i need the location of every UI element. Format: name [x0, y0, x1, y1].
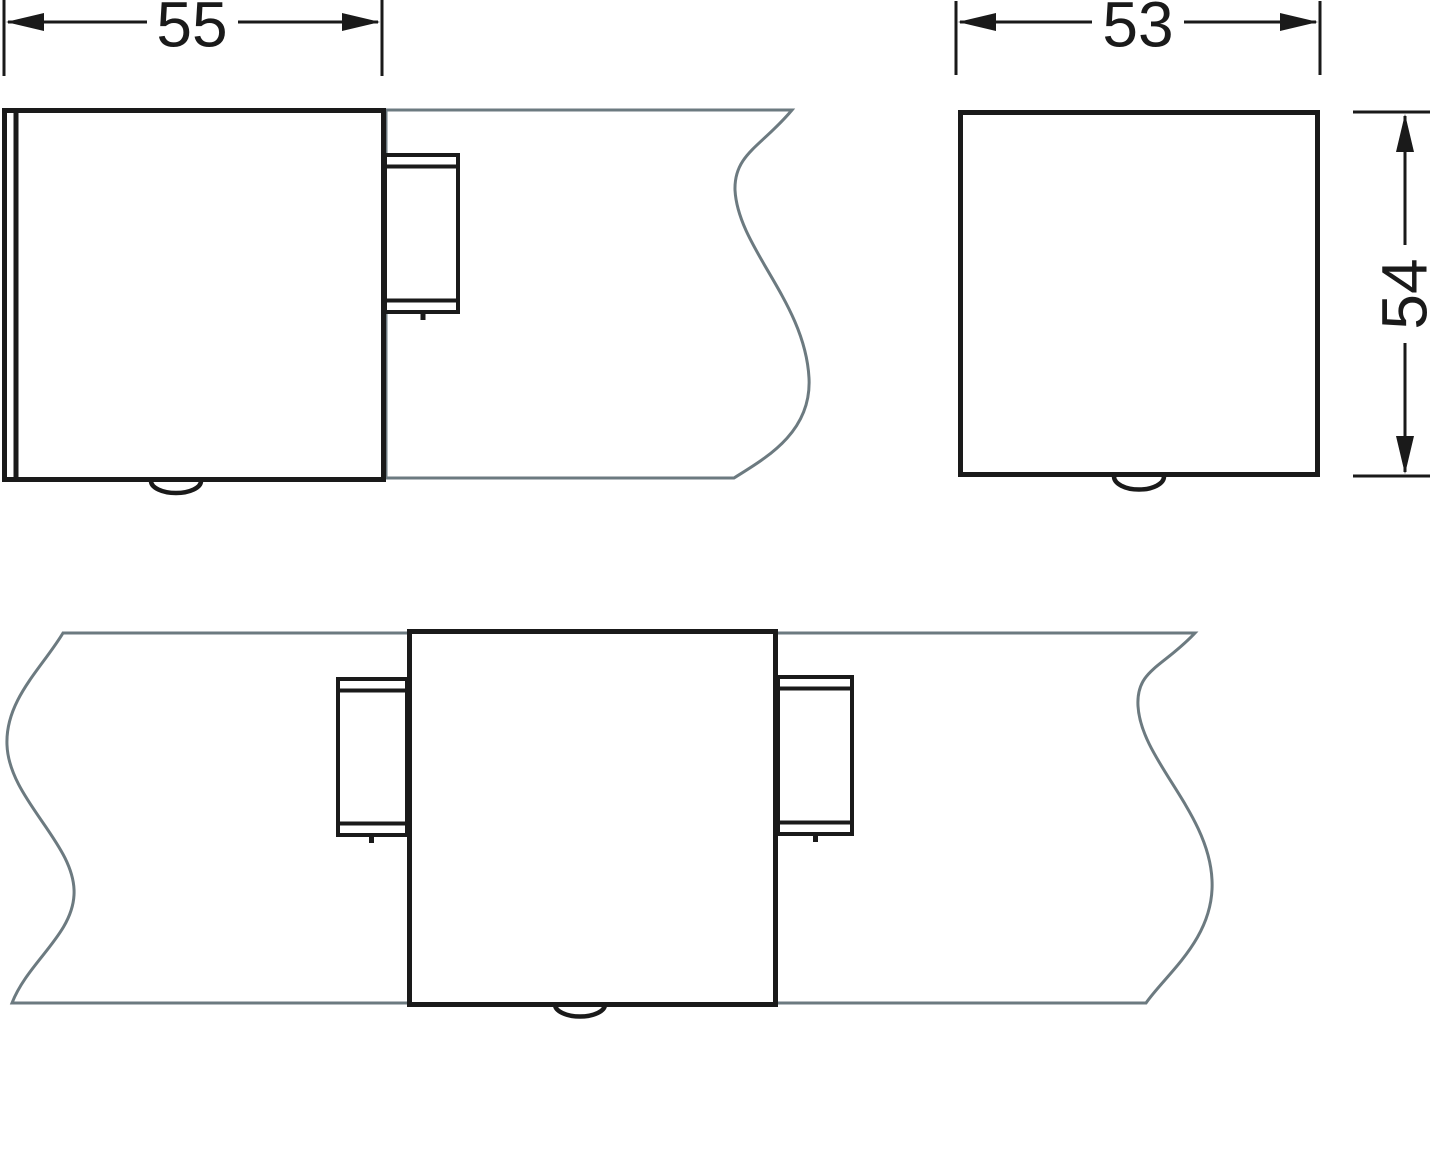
dim-55-arrow-left [6, 13, 44, 31]
plan-view-cap-body [410, 632, 776, 1005]
plan-view-right-clip-center-tick [813, 836, 818, 842]
plan-view-right-clip [778, 677, 852, 842]
plan-view-left-clip-outline [338, 679, 407, 835]
end-view-bottom-notch [1114, 477, 1164, 490]
side-view-clip-center-tick [421, 314, 426, 320]
dim-55-arrow-right [342, 13, 380, 31]
dim-53-arrow-left [958, 13, 996, 31]
plan-view-left-clip [338, 679, 409, 843]
side-view-clip-outline [385, 155, 458, 312]
dim-55-label: 55 [156, 0, 227, 60]
plan-view [7, 632, 1212, 1017]
plan-view-right-clip-outline [778, 677, 852, 834]
dim-53: 53 [956, 0, 1320, 75]
side-view-clip [383, 155, 458, 320]
dim-53-label: 53 [1102, 0, 1173, 60]
dim-54: 54 [1353, 112, 1440, 476]
end-view-cap-face [961, 113, 1318, 475]
side-view-bottom-notch [151, 481, 201, 493]
dim-54-label: 54 [1368, 258, 1440, 329]
dim-54-arrow-bottom [1396, 436, 1414, 474]
end-view [961, 113, 1318, 490]
dim-53-arrow-right [1280, 13, 1318, 31]
technical-drawing: 55 53 54 [0, 0, 1440, 1160]
drawing-canvas: 55 53 54 [0, 0, 1440, 1160]
side-view-cap-body [5, 111, 384, 480]
dim-55: 55 [4, 0, 382, 76]
side-view [5, 110, 810, 493]
plan-view-left-clip-center-tick [369, 837, 374, 843]
dim-54-arrow-top [1396, 114, 1414, 152]
